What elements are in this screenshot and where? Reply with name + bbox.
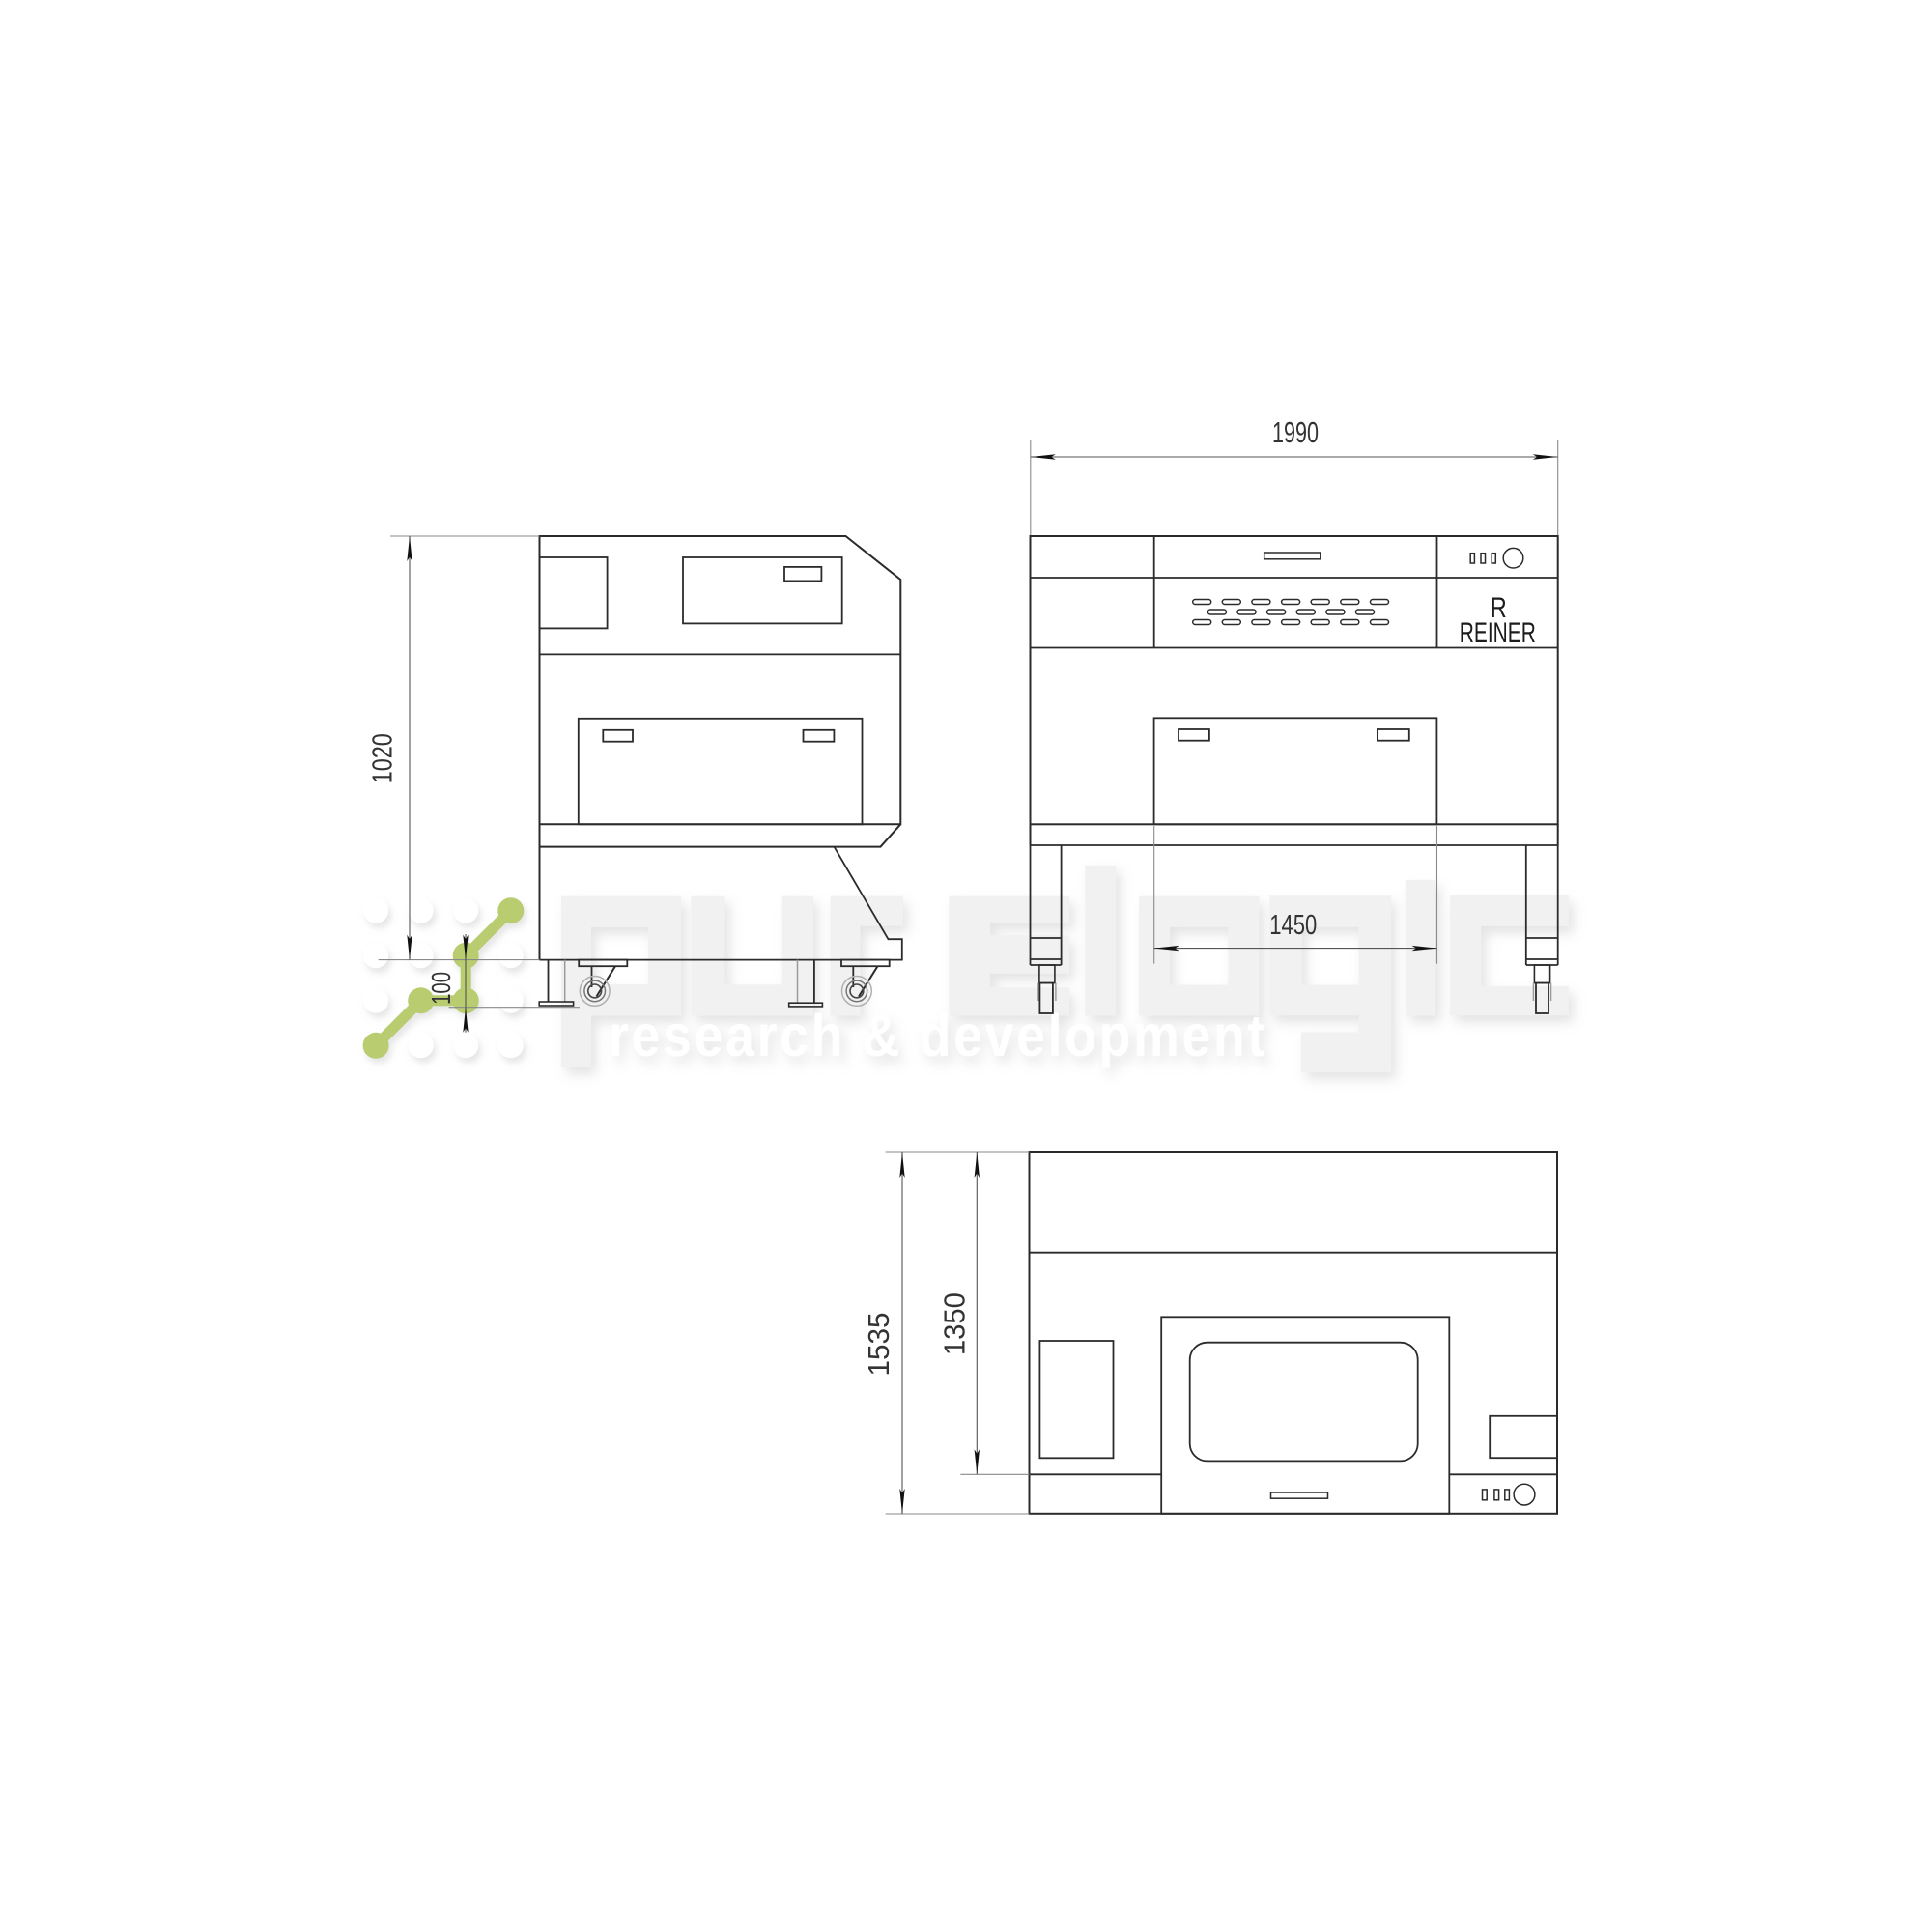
svg-text:REINER: REINER	[1460, 617, 1536, 649]
svg-text:research & development: research & development	[609, 1003, 1267, 1068]
svg-text:1535: 1535	[862, 1313, 895, 1377]
svg-text:1450: 1450	[1269, 910, 1317, 941]
svg-text:1990: 1990	[1272, 415, 1319, 449]
svg-text:1350: 1350	[938, 1293, 972, 1355]
svg-text:100: 100	[426, 972, 456, 1005]
svg-text:1020: 1020	[368, 733, 399, 783]
